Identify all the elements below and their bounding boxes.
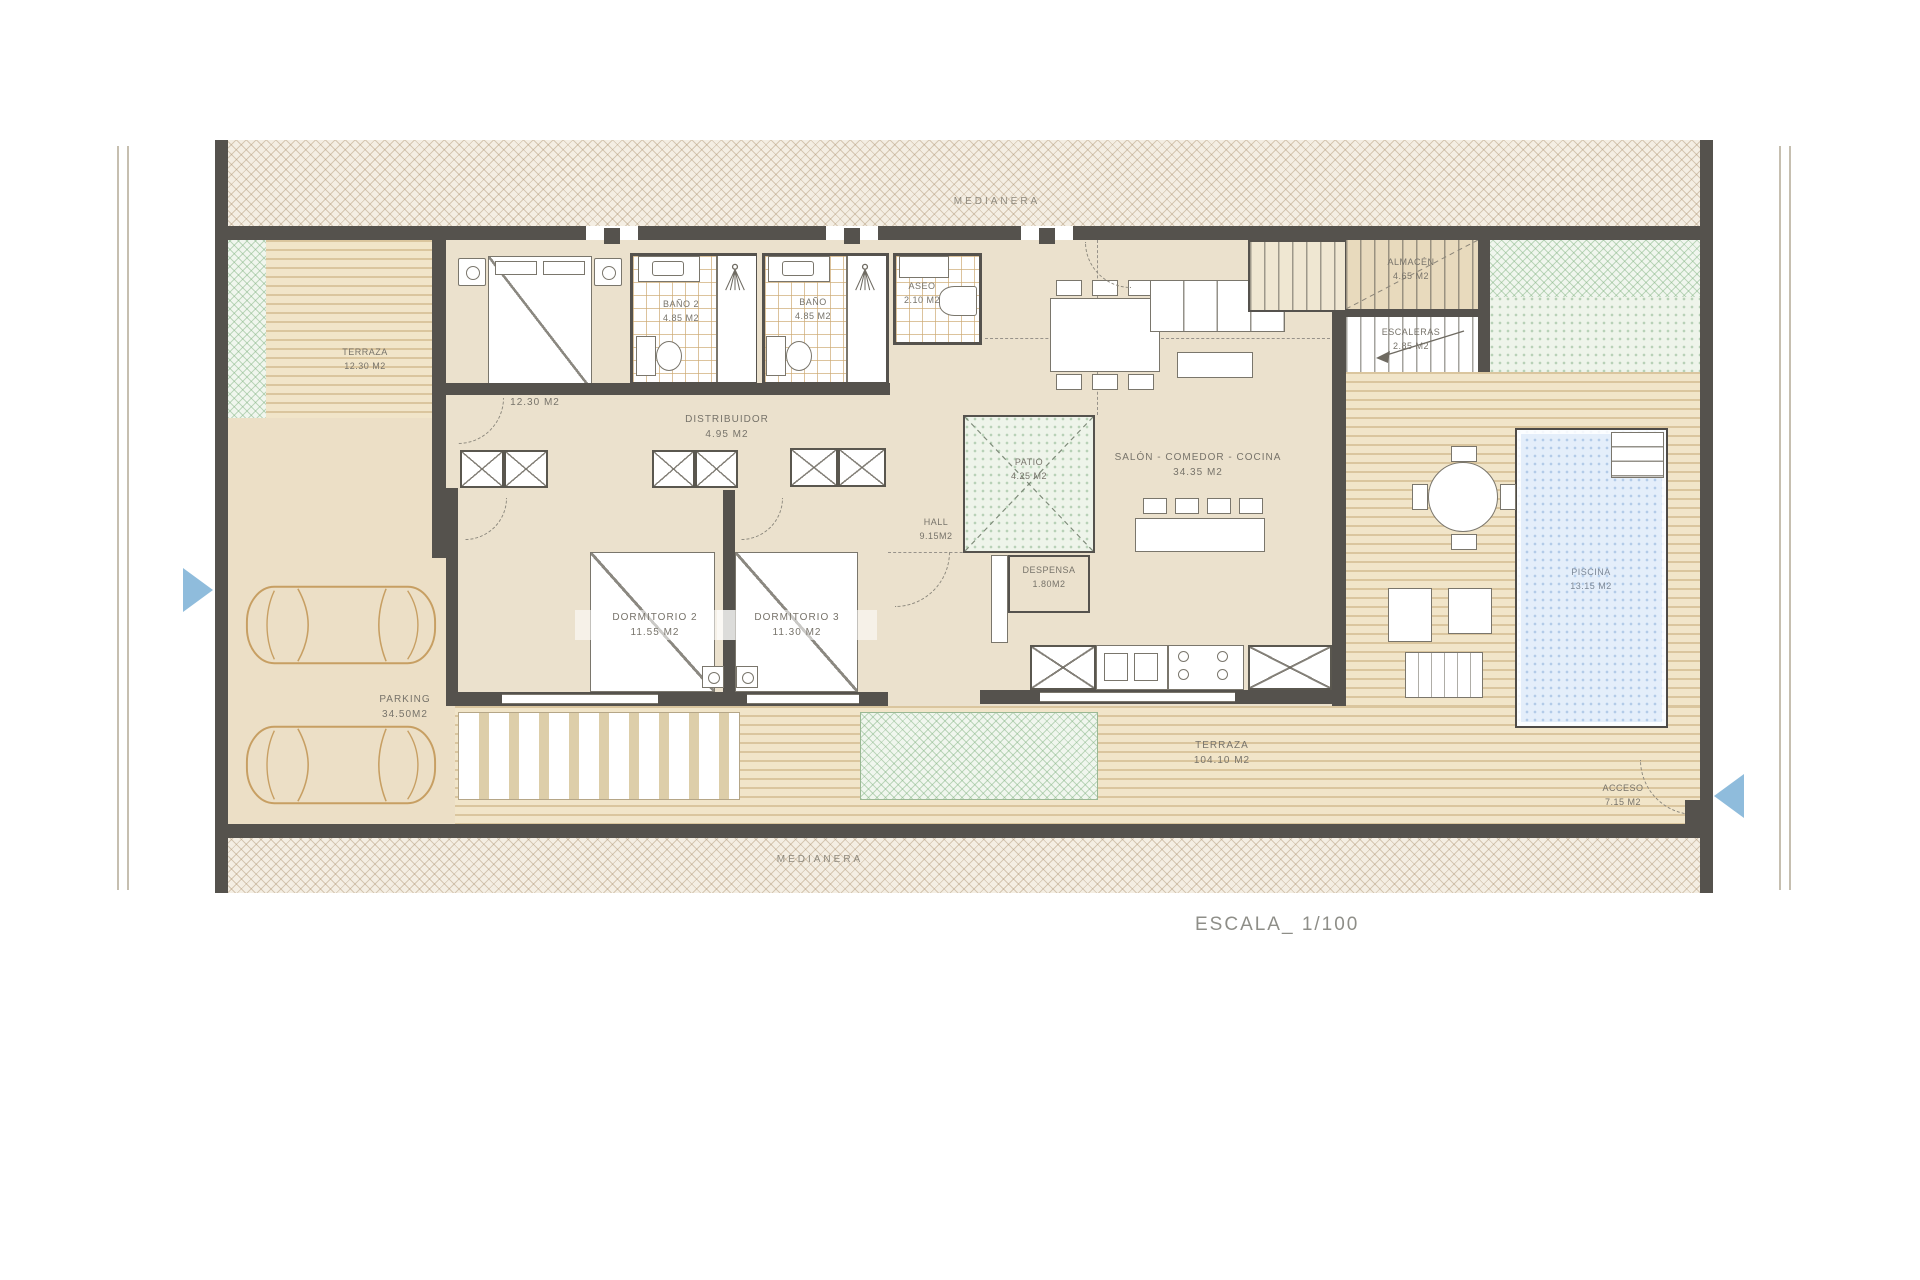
room-label-dormitorio3: DORMITORIO 3 11.30 m2 <box>717 610 877 640</box>
nightstand-right-lamp-icon <box>602 266 616 280</box>
shower-icon <box>721 262 749 294</box>
planting-strip-left <box>228 240 266 418</box>
bathroom-toilet-bowl <box>786 341 812 371</box>
pergola-slats <box>458 712 740 800</box>
cooktop-burner <box>1217 651 1228 662</box>
room-label-salon: SALÓN - COMEDOR - COCINA 34.35 m2 <box>1093 450 1303 480</box>
room-label-terraza-left: TERRAZA 12.30 m2 <box>300 346 430 373</box>
wall-under-bathrooms <box>446 383 890 395</box>
outdoor-chair <box>1451 446 1477 462</box>
gravel-top-right <box>1490 297 1700 372</box>
kitchen-stool <box>1207 498 1231 514</box>
room-label-aseo: ASEO 2.10 m2 <box>862 280 982 307</box>
sun-lounger <box>1405 652 1483 698</box>
boundary-wall-right <box>1700 140 1713 893</box>
coffee-table <box>1177 352 1253 378</box>
wardrobe-2-panel-b <box>695 450 738 488</box>
column-marker-3 <box>1039 228 1055 244</box>
outdoor-chair <box>1451 534 1477 550</box>
kitchen-island <box>1135 518 1265 552</box>
page-frame-line-right-outer <box>1789 146 1791 890</box>
outdoor-round-table <box>1428 462 1498 532</box>
nightstand-left-lamp-icon <box>466 266 480 280</box>
bathroom2-toilet-bowl <box>656 341 682 371</box>
kitchen-stool <box>1143 498 1167 514</box>
page-frame-line-left-outer <box>117 146 119 890</box>
aseo-sink <box>899 256 949 278</box>
hall-closet-panel-b <box>838 448 886 487</box>
salon-glass-door <box>1040 692 1235 702</box>
terrace-left-deck <box>266 240 446 418</box>
room-label-piscina: PISCINA 13.15 m2 <box>1531 566 1651 593</box>
room-label-terraza-main: TERRAZA 104.10 m2 <box>1142 738 1302 768</box>
room-label-bano2: BAÑO 2 4.85 m2 <box>621 298 741 325</box>
patio-court <box>963 415 1095 553</box>
wardrobe-1-panel-b <box>504 450 548 488</box>
party-wall-label-top: MEDIANERA <box>897 196 1097 207</box>
column-marker-2 <box>844 228 860 244</box>
floor-plan: MEDIANERA MEDIANERA TERRAZA 12.30 m2 PAR… <box>215 140 1713 893</box>
room-label-escaleras: ESCALERAS 2.85 m2 <box>1351 326 1471 353</box>
kitchen-sink-basin-1 <box>1104 653 1128 681</box>
party-wall-label-bottom: MEDIANERA <box>720 854 920 865</box>
bathroom2-sink-basin <box>652 261 684 276</box>
stair-flight-upper <box>1248 240 1347 312</box>
page-frame-line-right-inner <box>1779 146 1781 890</box>
patio-diagonals <box>965 417 1093 551</box>
dining-chair <box>1056 374 1082 390</box>
bathroom-toilet-tank <box>766 336 786 376</box>
outdoor-chair <box>1500 484 1516 510</box>
bedroom-divider-wall <box>723 490 735 695</box>
bedroom-sconce-1-icon <box>708 672 720 684</box>
lounge-chair-2 <box>1448 588 1492 634</box>
party-wall-band-bottom <box>215 838 1713 893</box>
scale-label: ESCALA_ 1/100 <box>1195 914 1359 936</box>
wardrobe-1-panel-a <box>460 450 504 488</box>
master-bed-pillow-2 <box>543 261 585 275</box>
room-label-bano: BAÑO 4.85 m2 <box>753 296 873 323</box>
outdoor-chair <box>1412 484 1428 510</box>
acceso-door-jamb <box>1685 800 1700 824</box>
car-top-view-1 <box>243 578 439 672</box>
tall-cabinet <box>991 555 1008 643</box>
lawn-on-terrace <box>860 712 1098 800</box>
bathroom2-toilet-tank <box>636 336 656 376</box>
wardrobe-2-panel-a <box>652 450 695 488</box>
room-label-dormitorio2: DORMITORIO 2 11.55 m2 <box>575 610 735 640</box>
house-wall-left-lower <box>446 488 458 706</box>
pool-steps <box>1611 432 1664 478</box>
master-bed-pillow-1 <box>495 261 537 275</box>
dining-chair <box>1128 374 1154 390</box>
room-label-distribuidor: DISTRIBUIDOR 4.95 m2 <box>647 412 807 442</box>
kitchen-stool <box>1175 498 1199 514</box>
boundary-wall-bottom <box>215 824 1713 838</box>
dining-table <box>1050 298 1160 372</box>
master-bed <box>488 256 592 390</box>
dining-chair <box>1092 374 1118 390</box>
planting-top-right <box>1490 240 1700 297</box>
cooktop-burner <box>1178 669 1189 680</box>
cooktop-burner <box>1178 651 1189 662</box>
bathroom-sink-basin <box>782 261 814 276</box>
boundary-wall-left <box>215 140 228 893</box>
kitchen-cabinet-left <box>1030 645 1096 690</box>
dining-chair <box>1056 280 1082 296</box>
party-wall-band-top <box>215 140 1713 228</box>
bedroom3-window <box>747 694 859 704</box>
cooktop-burner <box>1217 669 1228 680</box>
kitchen-stool <box>1239 498 1263 514</box>
kitchen-cabinet-right <box>1248 645 1332 690</box>
bedroom-sconce-2-icon <box>742 672 754 684</box>
kitchen-sink-basin-2 <box>1134 653 1158 681</box>
boundary-wall-top <box>215 226 1713 240</box>
column-marker-1 <box>604 228 620 244</box>
entry-arrow-left-icon <box>183 568 213 612</box>
entry-arrow-right-icon <box>1714 774 1744 818</box>
page-frame-line-left-inner <box>127 146 129 890</box>
room-label-patio: PATIO 4.25 m2 <box>969 456 1089 483</box>
lounge-chair-1 <box>1388 588 1432 642</box>
bedroom2-window <box>502 694 658 704</box>
stairblock-wall-right <box>1478 240 1490 372</box>
house-wall-left <box>432 240 446 558</box>
room-label-almacen: ALMACÉN 4.65 m2 <box>1351 256 1471 283</box>
almacen-escaleras-wall <box>1346 309 1478 317</box>
car-top-view-2 <box>243 718 439 812</box>
hall-closet-panel-a <box>790 448 838 487</box>
